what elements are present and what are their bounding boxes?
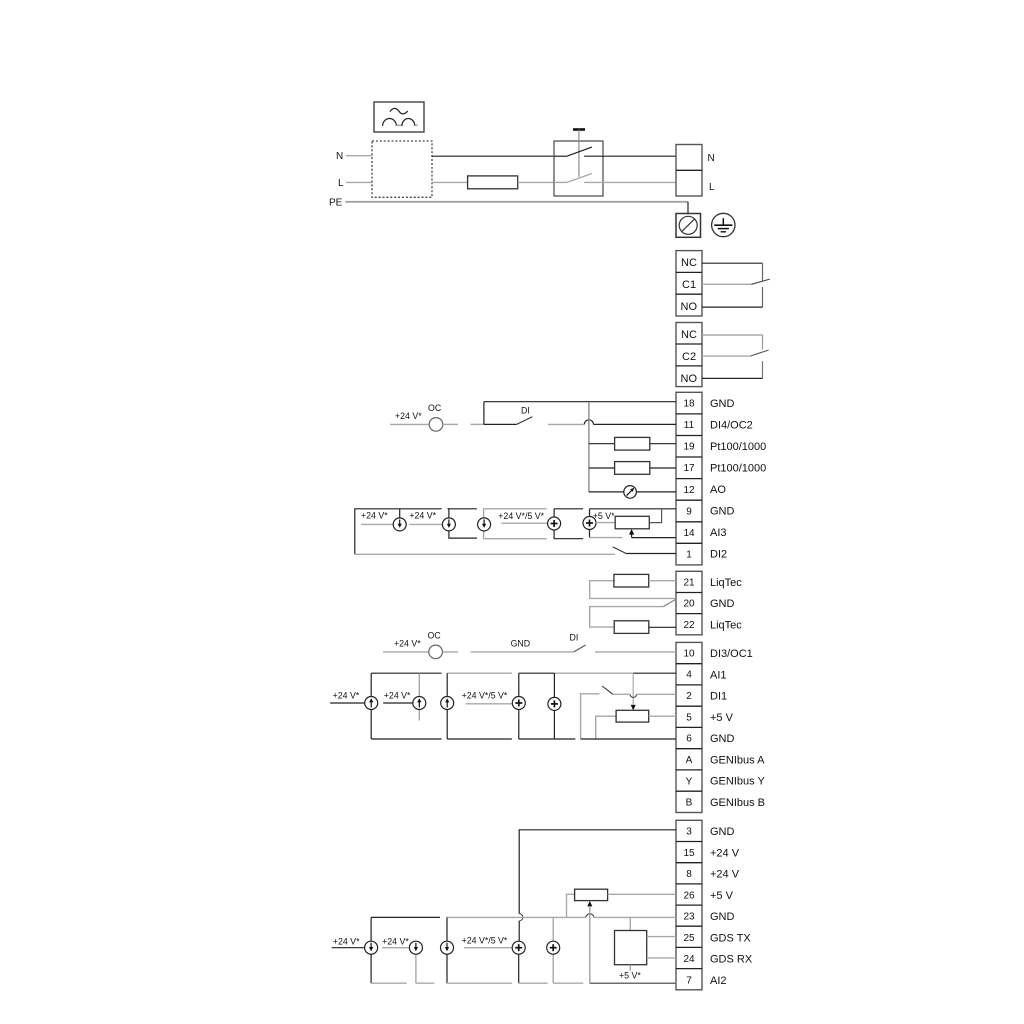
svg-text:+5 V: +5 V bbox=[710, 890, 734, 902]
svg-text:DI4/OC2: DI4/OC2 bbox=[710, 420, 753, 432]
svg-text:+24 V*: +24 V* bbox=[384, 691, 411, 701]
svg-text:DI: DI bbox=[570, 632, 579, 642]
svg-text:GDS TX: GDS TX bbox=[710, 933, 751, 945]
svg-text:14: 14 bbox=[683, 528, 695, 539]
svg-text:OC: OC bbox=[428, 403, 442, 413]
svg-text:20: 20 bbox=[683, 599, 695, 610]
svg-text:10: 10 bbox=[683, 649, 695, 660]
svg-text:PE: PE bbox=[329, 198, 343, 209]
svg-text:+24 V*/5 V*: +24 V*/5 V* bbox=[462, 691, 508, 701]
svg-text:DI2: DI2 bbox=[710, 549, 727, 561]
svg-text:+24 V: +24 V bbox=[710, 869, 740, 881]
svg-text:GND: GND bbox=[511, 638, 531, 648]
svg-text:5: 5 bbox=[686, 713, 692, 724]
svg-text:4: 4 bbox=[686, 670, 692, 681]
svg-text:+24 V*: +24 V* bbox=[361, 511, 388, 521]
svg-text:Pt100/1000: Pt100/1000 bbox=[710, 441, 766, 453]
svg-text:11: 11 bbox=[684, 420, 695, 431]
svg-text:17: 17 bbox=[683, 463, 695, 474]
svg-text:8: 8 bbox=[686, 869, 692, 880]
svg-text:AI2: AI2 bbox=[710, 975, 727, 987]
svg-text:+5 V*: +5 V* bbox=[619, 971, 641, 981]
svg-text:DI3/OC1: DI3/OC1 bbox=[710, 648, 753, 660]
svg-text:1: 1 bbox=[686, 550, 692, 561]
svg-text:LiqTec: LiqTec bbox=[710, 620, 742, 632]
svg-text:+24 V*: +24 V* bbox=[333, 937, 360, 947]
svg-text:+24 V*: +24 V* bbox=[409, 511, 436, 521]
svg-text:+24 V: +24 V bbox=[710, 848, 740, 860]
svg-text:NC: NC bbox=[681, 329, 697, 341]
svg-text:AI1: AI1 bbox=[710, 670, 727, 682]
svg-text:+24 V*: +24 V* bbox=[394, 639, 421, 649]
svg-text:N: N bbox=[708, 153, 715, 164]
svg-text:N: N bbox=[336, 151, 343, 162]
svg-text:GDS RX: GDS RX bbox=[710, 954, 753, 966]
svg-text:15: 15 bbox=[683, 848, 695, 859]
svg-text:9: 9 bbox=[686, 507, 692, 518]
svg-text:GENIbus B: GENIbus B bbox=[710, 797, 765, 809]
svg-text:3: 3 bbox=[686, 827, 692, 838]
svg-text:23: 23 bbox=[683, 912, 695, 923]
svg-text:NO: NO bbox=[681, 373, 698, 385]
svg-text:GENIbus Y: GENIbus Y bbox=[710, 776, 765, 788]
svg-text:+24 V*: +24 V* bbox=[395, 411, 422, 421]
svg-text:GND: GND bbox=[710, 826, 735, 838]
svg-text:+5 V*: +5 V* bbox=[593, 511, 615, 521]
svg-text:25: 25 bbox=[683, 933, 695, 944]
svg-text:GENIbus A: GENIbus A bbox=[710, 755, 765, 767]
svg-text:Pt100/1000: Pt100/1000 bbox=[710, 463, 766, 475]
svg-text:+24 V*: +24 V* bbox=[333, 691, 360, 701]
svg-text:26: 26 bbox=[683, 891, 695, 902]
svg-text:DI1: DI1 bbox=[710, 691, 727, 703]
svg-text:GND: GND bbox=[710, 398, 735, 410]
svg-text:7: 7 bbox=[686, 976, 692, 987]
svg-text:12: 12 bbox=[683, 485, 695, 496]
svg-text:GND: GND bbox=[710, 598, 735, 610]
svg-text:A: A bbox=[686, 755, 693, 766]
svg-text:19: 19 bbox=[683, 442, 695, 453]
svg-text:C2: C2 bbox=[682, 351, 696, 363]
svg-text:GND: GND bbox=[710, 506, 735, 518]
svg-text:LiqTec: LiqTec bbox=[710, 577, 742, 589]
svg-text:+24 V*: +24 V* bbox=[382, 937, 409, 947]
svg-text:+24 V*/5 V*: +24 V*/5 V* bbox=[462, 936, 508, 946]
svg-text:B: B bbox=[686, 798, 693, 809]
svg-text:+24 V*/5 V*: +24 V*/5 V* bbox=[498, 511, 544, 521]
svg-text:NC: NC bbox=[681, 257, 697, 269]
svg-text:Y: Y bbox=[686, 777, 693, 788]
svg-text:AI3: AI3 bbox=[710, 527, 727, 539]
svg-text:OC: OC bbox=[428, 631, 442, 641]
svg-text:24: 24 bbox=[683, 954, 695, 965]
svg-text:21: 21 bbox=[683, 578, 695, 589]
svg-text:L: L bbox=[338, 178, 344, 189]
svg-text:L: L bbox=[709, 182, 715, 193]
svg-text:DI: DI bbox=[521, 406, 530, 416]
svg-text:18: 18 bbox=[683, 399, 695, 410]
svg-text:2: 2 bbox=[686, 691, 692, 702]
svg-text:GND: GND bbox=[710, 733, 735, 745]
svg-text:22: 22 bbox=[683, 620, 695, 631]
svg-text:C1: C1 bbox=[682, 279, 696, 291]
svg-text:AO: AO bbox=[710, 484, 726, 496]
svg-text:6: 6 bbox=[686, 734, 692, 745]
svg-text:GND: GND bbox=[710, 911, 735, 923]
svg-text:NO: NO bbox=[681, 301, 698, 313]
svg-text:+5 V: +5 V bbox=[710, 712, 734, 724]
